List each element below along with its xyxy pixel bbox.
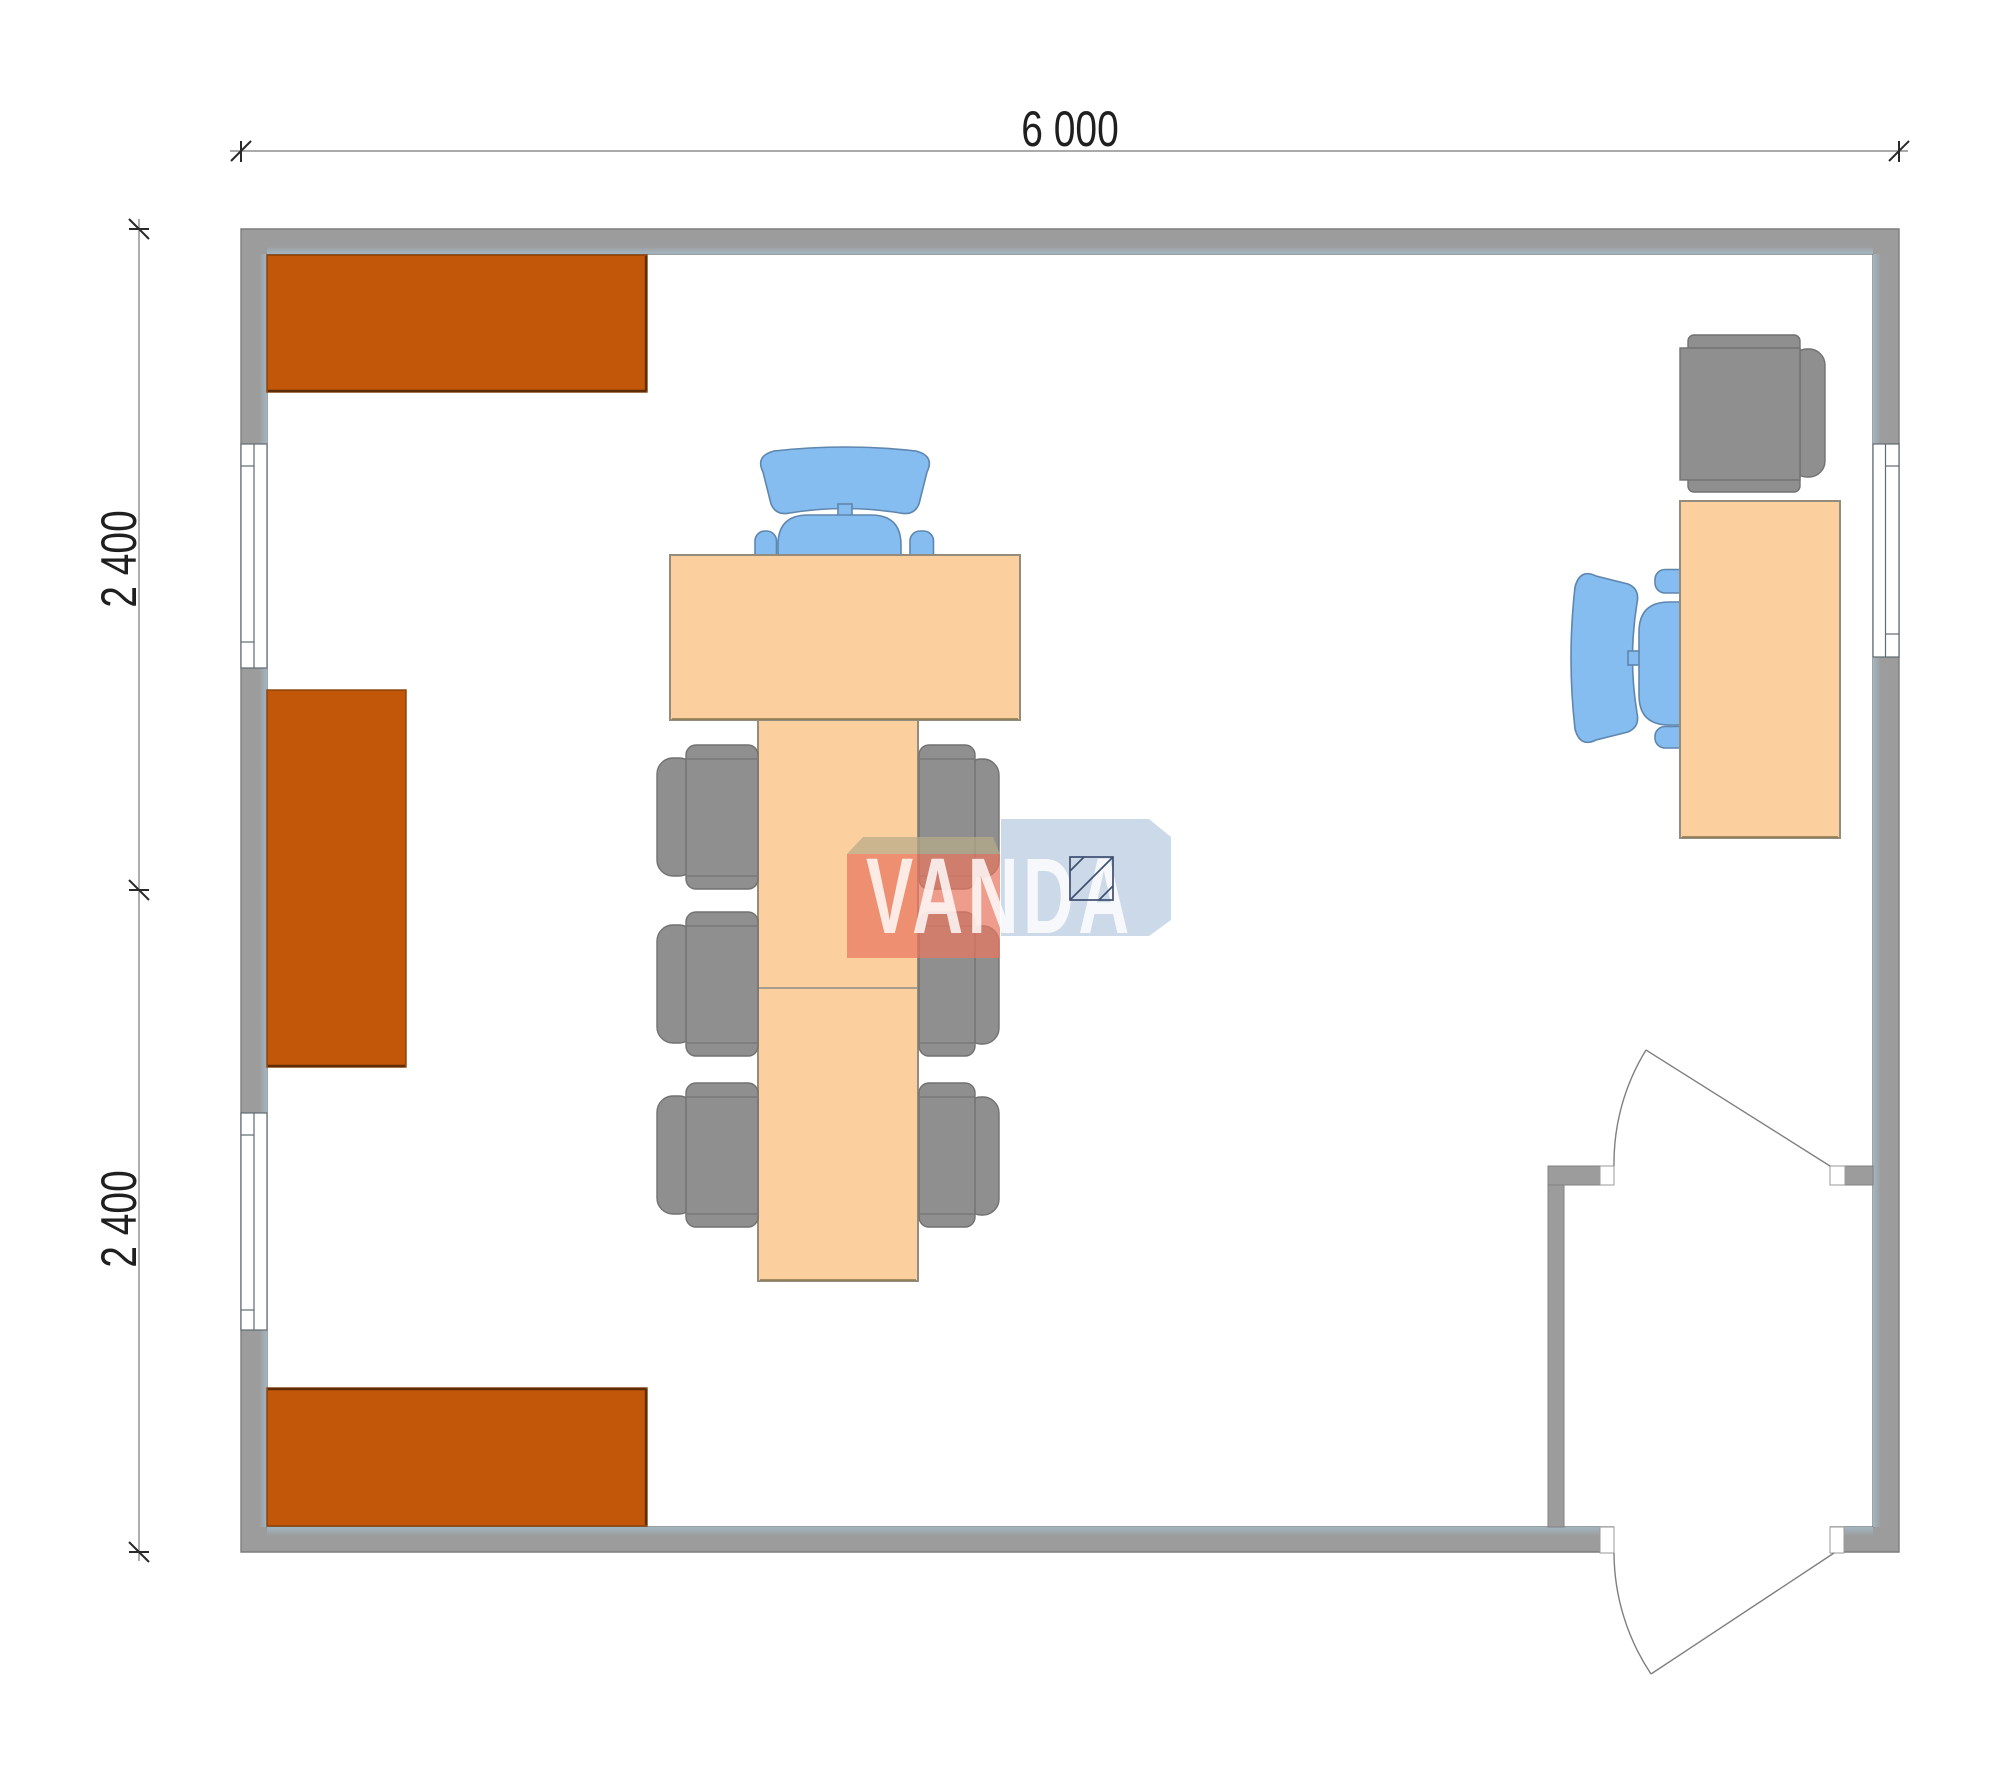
svg-text:VANDA: VANDA	[866, 836, 1134, 957]
svg-text:2 400: 2 400	[90, 1170, 147, 1268]
svg-text:2 400: 2 400	[90, 510, 147, 608]
svg-text:6 000: 6 000	[1021, 100, 1119, 157]
